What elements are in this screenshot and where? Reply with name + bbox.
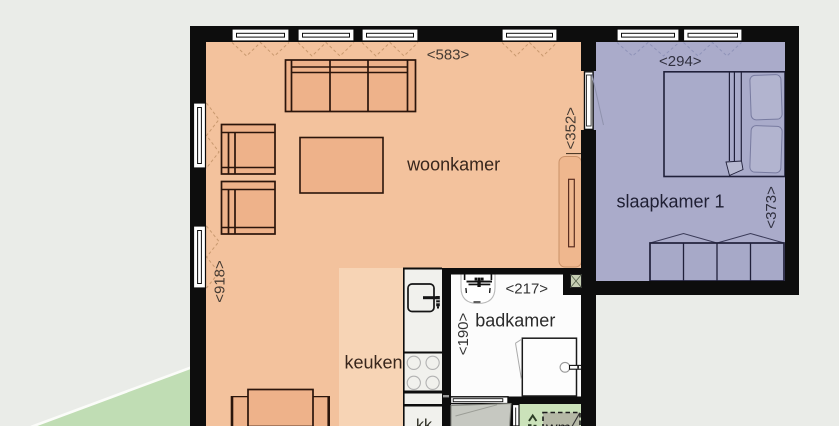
svg-text:wm: wm <box>545 420 571 426</box>
svg-text:slaapkamer 1: slaapkamer 1 <box>616 192 724 212</box>
svg-text:<918>: <918> <box>212 260 229 303</box>
svg-text:woonkamer: woonkamer <box>406 155 500 175</box>
svg-text:<217>: <217> <box>506 281 549 298</box>
svg-text:<190>: <190> <box>455 312 472 355</box>
svg-text:keuken: keuken <box>344 353 402 373</box>
svg-text:badkamer: badkamer <box>475 311 555 331</box>
svg-text:<373>: <373> <box>763 186 780 229</box>
svg-text:<583>: <583> <box>427 47 470 64</box>
svg-text:<352>: <352> <box>563 107 580 150</box>
svg-text:kk: kk <box>416 417 433 426</box>
svg-text:<294>: <294> <box>659 53 702 70</box>
